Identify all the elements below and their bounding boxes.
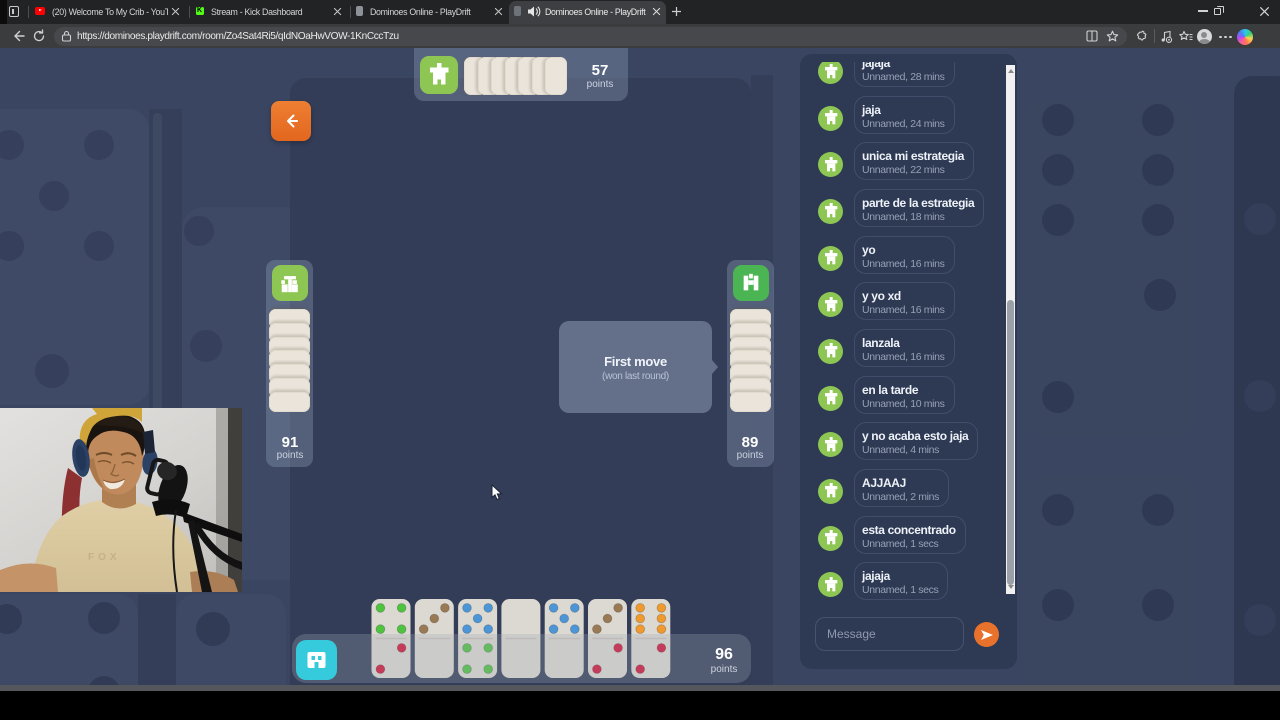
svg-text:FOX: FOX	[88, 552, 121, 563]
